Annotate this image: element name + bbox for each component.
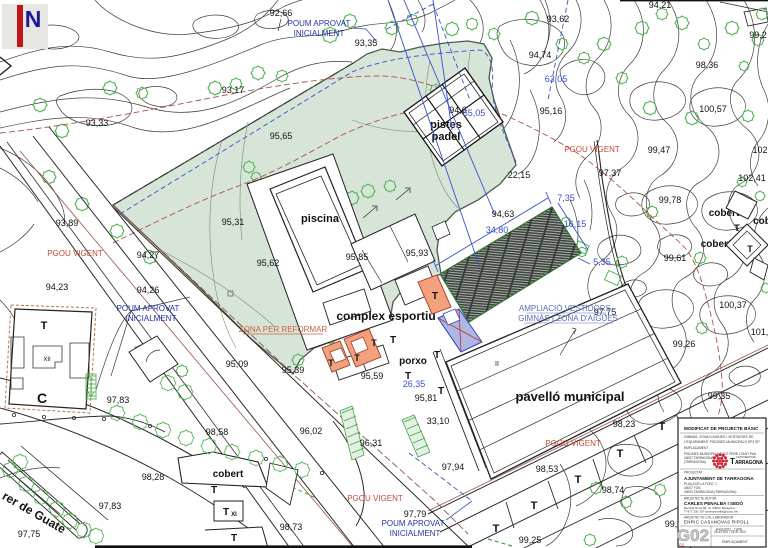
svg-text:102: 102 [752,145,767,155]
svg-text:ZONA PER REFORMAR: ZONA PER REFORMAR [239,325,328,334]
svg-text:98,28: 98,28 [142,472,165,482]
svg-text:cobert: cobert [213,469,244,480]
svg-text:PGOU VIGENT: PGOU VIGENT [545,439,601,448]
svg-text:XI: XI [231,512,237,518]
svg-text:C: C [37,390,47,406]
svg-text:16,15: 16,15 [564,219,587,229]
svg-text:T: T [617,448,624,460]
svg-text:complex esportiu: complex esportiu [336,309,435,323]
svg-text:33,10: 33,10 [427,416,450,426]
svg-text:EMPLAÇAMENT: EMPLAÇAMENT [684,446,708,450]
svg-text:T: T [231,533,237,544]
svg-text:98,36: 98,36 [696,60,719,70]
svg-text:99,61: 99,61 [664,253,687,263]
svg-text:L'EQUIPAMENT PISCINES MUNICIPA: L'EQUIPAMENT PISCINES MUNICIPALS SP3 SP [684,440,760,444]
svg-text:95,65: 95,65 [270,131,293,141]
svg-text:97,83: 97,83 [107,395,130,405]
svg-text:100,37: 100,37 [719,300,747,310]
svg-text:Tf 977 230 307 carlespenalba@c: Tf 977 230 307 carlespenalba@coac.net [684,510,738,514]
svg-text:94,63: 94,63 [492,209,515,219]
svg-text:T: T [41,320,48,332]
svg-text:T: T [390,335,396,346]
svg-text:T: T [371,338,377,348]
svg-text:GIMNÀS I ZONA D'AIGÜES: GIMNÀS I ZONA D'AIGÜES [518,314,618,323]
svg-text:93,33: 93,33 [86,118,109,128]
svg-text:95,09: 95,09 [226,359,249,369]
svg-text:97,37: 97,37 [599,168,622,178]
svg-text:98,58: 98,58 [206,427,229,437]
svg-text:97,83: 97,83 [99,501,122,511]
svg-text:POUM APROVAT: POUM APROVAT [288,19,351,28]
svg-text:MODIFICAT DE PROJECTE BÀSIC: MODIFICAT DE PROJECTE BÀSIC [684,425,759,431]
svg-text:T: T [328,358,334,368]
svg-text:AMPLIACIÓ VESTIDORS,: AMPLIACIÓ VESTIDORS, [519,304,613,313]
svg-text:99,25: 99,25 [519,535,542,545]
svg-text:95,59: 95,59 [361,371,384,381]
svg-text:94,74: 94,74 [529,50,552,60]
svg-text:PGOU VIGENT: PGOU VIGENT [47,249,103,258]
svg-text:28 43 001 / 28 41 G03: 28 43 001 / 28 41 G03 [714,530,746,534]
svg-text:96,31: 96,31 [360,438,383,448]
svg-text:AJUNTAMENT DE: AJUNTAMENT DE [736,456,756,459]
svg-text:T: T [223,507,229,518]
svg-text:5,35: 5,35 [593,257,611,267]
svg-text:T: T [531,500,538,512]
svg-text:INICIALMENT: INICIALMENT [294,29,345,38]
svg-text:95,81: 95,81 [415,393,438,403]
svg-text:95,31: 95,31 [222,217,245,227]
svg-text:98,23: 98,23 [613,419,636,429]
svg-text:T: T [438,386,444,397]
svg-text:97,94: 97,94 [442,462,465,472]
svg-text:02: 02 [679,543,685,548]
svg-text:ARRAGONA: ARRAGONA [735,460,763,466]
svg-text:T: T [211,485,217,496]
svg-text:95,62: 95,62 [257,258,280,268]
svg-text:T: T [575,474,582,486]
svg-text:T: T [434,350,440,361]
svg-text:N: N [25,6,42,32]
svg-text:92,66: 92,66 [270,8,293,18]
svg-text:94,21: 94,21 [649,0,672,10]
svg-text:T: T [659,421,666,433]
svg-text:padel: padel [432,131,461,143]
svg-text:99,26: 99,26 [673,339,696,349]
svg-text:T: T [432,291,438,302]
svg-text:PROJECTAT: PROJECTAT [684,471,703,475]
svg-text:97,79: 97,79 [404,509,427,519]
svg-text:34,80: 34,80 [486,225,509,235]
svg-text:22,15: 22,15 [508,170,531,180]
svg-text:94,26: 94,26 [137,285,160,295]
svg-text:T: T [493,523,500,535]
svg-text:ARQUITECTE AUTOR: ARQUITECTE AUTOR [684,497,717,501]
svg-text:cob: cob [753,216,768,227]
svg-text:(TARRAGONA): (TARRAGONA) [684,460,706,464]
svg-text:65,05: 65,05 [463,108,486,118]
svg-text:99,35: 99,35 [708,391,731,401]
svg-text:93,35: 93,35 [355,38,378,48]
svg-text:CARLES PENALBA I SEDÓ: CARLES PENALBA I SEDÓ [684,499,743,506]
svg-text:100,57: 100,57 [699,104,727,114]
svg-text:93,17: 93,17 [222,85,245,95]
svg-text:93,62: 93,62 [547,14,570,24]
svg-text:AJUNTAMENT DE TARRAGONA: AJUNTAMENT DE TARRAGONA [684,476,754,481]
svg-text:XII: XII [43,357,51,363]
svg-text:pavelló municipal: pavelló municipal [515,389,624,404]
svg-text:98,74: 98,74 [602,485,625,495]
svg-text:INICIALMENT: INICIALMENT [126,314,177,323]
svg-text:PGOU VIGENT: PGOU VIGENT [564,145,620,154]
svg-text:ENRIC CASANOVAS RIPOLL: ENRIC CASANOVAS RIPOLL [684,520,750,525]
svg-text:PGOU VIGENT: PGOU VIGENT [347,494,403,503]
svg-text:99,78: 99,78 [659,195,682,205]
svg-text:95,16: 95,16 [540,106,563,116]
svg-text:T: T [747,244,753,254]
svg-text:97,75: 97,75 [18,529,41,539]
svg-text:102,41: 102,41 [738,173,766,183]
svg-text:95,39: 95,39 [282,365,305,375]
svg-text:43003 TARRAGONA (TARRAGONA): 43003 TARRAGONA (TARRAGONA) [684,490,736,494]
svg-text:POUM APROVAT: POUM APROVAT [117,304,180,313]
svg-text:98,73: 98,73 [280,522,303,532]
svg-text:95,93: 95,93 [406,248,429,258]
svg-text:63,05: 63,05 [545,74,568,84]
svg-text:piscina: piscina [301,213,340,225]
svg-text:94,27: 94,27 [137,250,160,260]
svg-text:101,3: 101,3 [751,327,768,337]
svg-text:T: T [354,353,360,363]
svg-text:GIMNÀS, ZONA D'AIGÜES I VESTID: GIMNÀS, ZONA D'AIGÜES I VESTIDORS DE [684,435,754,439]
svg-text:7,35: 7,35 [557,193,575,203]
svg-text:EMPLAÇAMENT: EMPLAÇAMENT [722,540,748,544]
svg-text:II: II [495,361,499,368]
svg-text:porxo: porxo [399,356,427,367]
svg-text:99,47: 99,47 [648,145,671,155]
svg-text:95,85: 95,85 [346,252,369,262]
svg-text:POUM APROVAT: POUM APROVAT [382,519,445,528]
svg-text:94,23: 94,23 [46,282,69,292]
svg-text:INICIALMENT: INICIALMENT [390,529,441,538]
svg-text:96,02: 96,02 [300,426,323,436]
svg-text:93,89: 93,89 [56,218,79,228]
svg-text:98,53: 98,53 [536,464,559,474]
svg-text:26,35: 26,35 [403,379,426,389]
svg-text:99,2: 99,2 [749,30,767,40]
